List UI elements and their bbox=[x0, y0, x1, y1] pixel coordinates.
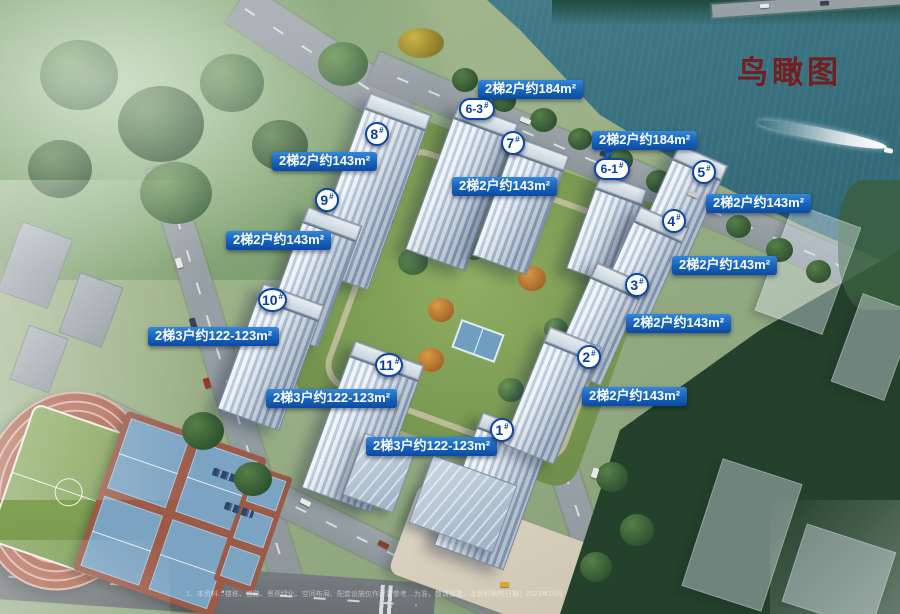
unit-label-1: 2梯3户约122-123m² bbox=[366, 437, 497, 456]
unit-label-text: 2梯2户约143m² bbox=[233, 232, 324, 247]
tree-cluster bbox=[580, 552, 612, 582]
unit-label-3: 2梯2户约143m² bbox=[626, 314, 731, 333]
badge-number: 2 bbox=[582, 350, 590, 364]
hash-suffix: # bbox=[395, 358, 399, 366]
tree-cluster bbox=[318, 42, 368, 86]
unit-label-2: 2梯2户约143m² bbox=[582, 387, 687, 406]
city-building bbox=[9, 325, 68, 394]
hash-suffix: # bbox=[504, 423, 508, 431]
unit-label-text: 2梯2户约184m² bbox=[599, 132, 690, 147]
hash-suffix: # bbox=[676, 214, 680, 222]
hash-suffix: # bbox=[706, 165, 710, 173]
unit-label-text: 2梯3户约122-123m² bbox=[273, 390, 390, 405]
tree-cluster bbox=[182, 412, 224, 450]
hash-suffix: # bbox=[279, 293, 283, 301]
badge-number: 6-3 bbox=[466, 103, 483, 115]
hash-suffix: # bbox=[379, 127, 383, 135]
badge-number: 11 bbox=[379, 358, 394, 372]
page-title: 鸟瞰图 bbox=[737, 47, 842, 92]
unit-label-9: 2梯2户约143m² bbox=[226, 231, 331, 250]
tree-cluster bbox=[28, 140, 92, 198]
aerial-render-scene: 鸟瞰图 2梯3户约122-123m² 2梯2户约143m² 2梯2户约143m²… bbox=[0, 0, 900, 614]
tree-cluster bbox=[140, 162, 212, 224]
unit-label-8: 2梯2户约143m² bbox=[272, 152, 377, 171]
badge-number: 6-1 bbox=[601, 163, 618, 175]
unit-label-11: 2梯3户约122-123m² bbox=[266, 389, 397, 408]
unit-label-text: 2梯2户约184m² bbox=[485, 81, 576, 96]
building-badge-9: 9# bbox=[315, 188, 339, 212]
tree-cluster bbox=[452, 68, 478, 92]
badge-number: 4 bbox=[667, 214, 675, 228]
unit-label-5: 2梯2户约143m² bbox=[706, 194, 811, 213]
unit-label-text: 2梯2户约143m² bbox=[279, 153, 370, 168]
unit-label-text: 2梯3户约122-123m² bbox=[155, 328, 272, 343]
unit-label-6-3: 2梯2户约184m² bbox=[478, 80, 583, 99]
car bbox=[760, 4, 769, 9]
city-building bbox=[58, 272, 123, 348]
hash-suffix: # bbox=[591, 350, 595, 358]
badge-number: 5 bbox=[697, 165, 705, 179]
hash-suffix: # bbox=[484, 102, 488, 110]
court bbox=[220, 546, 261, 587]
tree-cluster bbox=[40, 40, 118, 110]
hash-suffix: # bbox=[639, 278, 643, 286]
unit-label-text: 2梯2户约143m² bbox=[459, 178, 550, 193]
tree-cluster bbox=[568, 128, 592, 150]
unit-label-text: 2梯3户约122-123m² bbox=[373, 438, 490, 453]
tree-cluster bbox=[726, 215, 751, 238]
unit-label-text: 2梯2户约143m² bbox=[713, 195, 804, 210]
building-badge-6-1: 6-1# bbox=[594, 158, 630, 180]
car bbox=[820, 1, 829, 6]
building-badge-1: 1# bbox=[490, 418, 514, 442]
tree-cluster bbox=[428, 298, 454, 322]
hash-suffix: # bbox=[329, 193, 333, 201]
unit-label-4: 2梯2户约143m² bbox=[672, 256, 777, 275]
badge-number: 8 bbox=[370, 127, 378, 141]
hash-suffix: # bbox=[619, 162, 623, 170]
badge-number: 7 bbox=[506, 136, 514, 150]
building-badge-3: 3# bbox=[625, 273, 649, 297]
unit-label-text: 2梯2户约143m² bbox=[589, 388, 680, 403]
building-badge-4: 4# bbox=[662, 209, 686, 233]
unit-label-10: 2梯3户约122-123m² bbox=[148, 327, 279, 346]
tree-cluster bbox=[118, 86, 204, 162]
unit-label-7: 2梯2户约143m² bbox=[452, 177, 557, 196]
court bbox=[107, 418, 190, 508]
tree-cluster bbox=[234, 462, 272, 496]
building-badge-7: 7# bbox=[501, 131, 525, 155]
building-badge-8: 8# bbox=[365, 122, 389, 146]
tree-cluster bbox=[806, 260, 831, 283]
building-badge-5: 5# bbox=[692, 160, 716, 184]
court bbox=[80, 496, 163, 586]
taxi bbox=[500, 582, 509, 587]
unit-label-text: 2梯2户约143m² bbox=[679, 257, 770, 272]
badge-number: 3 bbox=[630, 278, 638, 292]
lawn-patch bbox=[398, 28, 444, 58]
building-badge-10: 10# bbox=[258, 288, 287, 312]
building-badge-6-3: 6-3# bbox=[459, 98, 495, 120]
hash-suffix: # bbox=[515, 136, 519, 144]
tree-cluster bbox=[530, 108, 557, 132]
badge-number: 9 bbox=[320, 193, 328, 207]
building-badge-11: 11# bbox=[375, 353, 403, 377]
tree-cluster bbox=[200, 54, 264, 112]
disclaimer-text: 1、本资料…楼栋、道路、景观绿化、空间布局、配套设施仅作示意参考…为准，敬请留意… bbox=[186, 589, 806, 599]
badge-number: 1 bbox=[495, 423, 503, 437]
tree-cluster bbox=[596, 462, 628, 492]
building-badge-2: 2# bbox=[577, 345, 601, 369]
field-circle bbox=[51, 474, 87, 510]
unit-label-text: 2梯2户约143m² bbox=[633, 315, 724, 330]
unit-label-6-1: 2梯2户约184m² bbox=[592, 131, 697, 150]
badge-number: 10 bbox=[262, 293, 278, 307]
tree-cluster bbox=[620, 514, 654, 546]
